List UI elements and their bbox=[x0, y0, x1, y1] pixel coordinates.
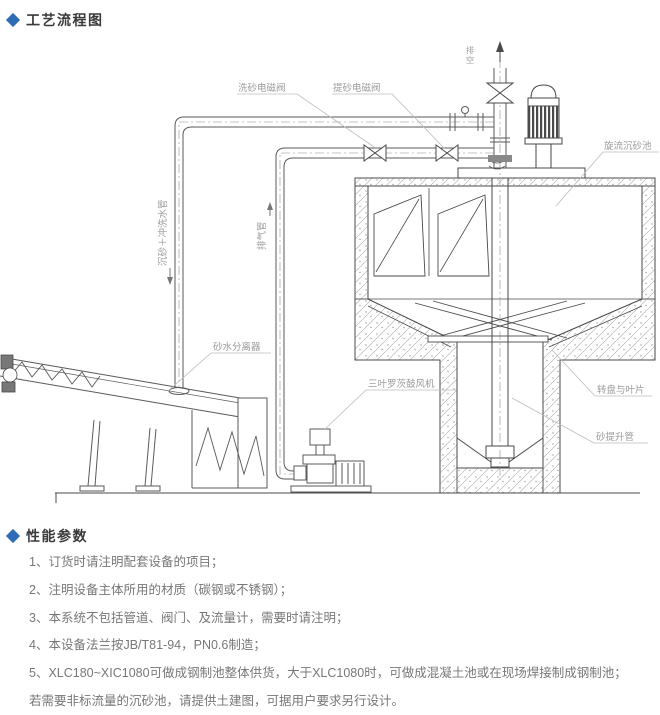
label-roots-blower: 三叶罗茨鼓风机 bbox=[368, 378, 435, 390]
section-header-performance-params: 性能参数 bbox=[8, 526, 88, 546]
down-arrow-icon bbox=[167, 277, 173, 285]
label-lift-solenoid-valve: 提砂电磁阀 bbox=[333, 82, 381, 94]
param-item: 若需要非标流量的沉砂池，请提供土建图，可据用户要求另行设计。 bbox=[29, 692, 652, 710]
roots-blower-drawing bbox=[291, 429, 371, 492]
up-arrow-icon bbox=[496, 41, 504, 52]
label-sand-water-pipe: 沉砂＋冲洗水管 bbox=[157, 199, 169, 266]
process-flow-diagram: 洗砂电磁阀 提砂电磁阀 旋流沉砂池 砂水分离器 三叶罗茨鼓风机 转盘与叶片 砂提… bbox=[0, 0, 660, 522]
page: 工艺流程图 bbox=[0, 0, 660, 715]
section-title: 性能参数 bbox=[26, 526, 88, 546]
blower-base bbox=[291, 486, 371, 492]
label-exhaust-pipe: 排气管 bbox=[256, 221, 268, 250]
ground-line bbox=[55, 493, 640, 503]
param-item: 5、XLC180~XIC1080可做成钢制池整体供货，大于XLC1080时，可做… bbox=[29, 664, 652, 682]
wash-solenoid-valve-icon bbox=[364, 145, 386, 161]
param-item: 4、本设备法兰按JB/T81-94，PN0.6制造； bbox=[29, 636, 652, 654]
label-cyclone-tank: 旋流沉砂池 bbox=[604, 140, 652, 152]
screw-conveyor-drawing bbox=[0, 355, 267, 491]
label-wash-solenoid-valve: 洗砂电磁阀 bbox=[238, 82, 286, 94]
diamond-icon bbox=[6, 529, 20, 543]
param-item: 2、注明设备主体所用的材质（碳钢或不锈钢）； bbox=[29, 581, 652, 599]
param-item: 1、订货时请注明配套设备的项目； bbox=[29, 553, 652, 571]
label-vent: 排空 bbox=[466, 46, 476, 65]
performance-params-list: 1、订货时请注明配套设备的项目； 2、注明设备主体所用的材质（碳钢或不锈钢）； … bbox=[29, 553, 652, 715]
motor-drawing bbox=[525, 85, 562, 168]
up-arrow-icon bbox=[267, 202, 273, 210]
small-valve-icon bbox=[462, 107, 469, 114]
cyclone-tank-drawing bbox=[355, 168, 655, 493]
conveyor-drive-motor bbox=[1, 355, 17, 392]
vent-valve-icon bbox=[487, 83, 513, 103]
lift-solenoid-valve-icon bbox=[436, 145, 458, 161]
screw-spiral bbox=[12, 362, 100, 387]
label-turntable-blades: 转盘与叶片 bbox=[597, 384, 645, 396]
blower-motor bbox=[336, 461, 364, 486]
param-item: 3、本系统不包括管道、阀门、及流量计，需要时请注明； bbox=[29, 609, 652, 627]
label-sand-lift-pipe: 砂提升管 bbox=[596, 431, 634, 443]
label-sand-water-separator: 砂水分离器 bbox=[213, 341, 261, 353]
